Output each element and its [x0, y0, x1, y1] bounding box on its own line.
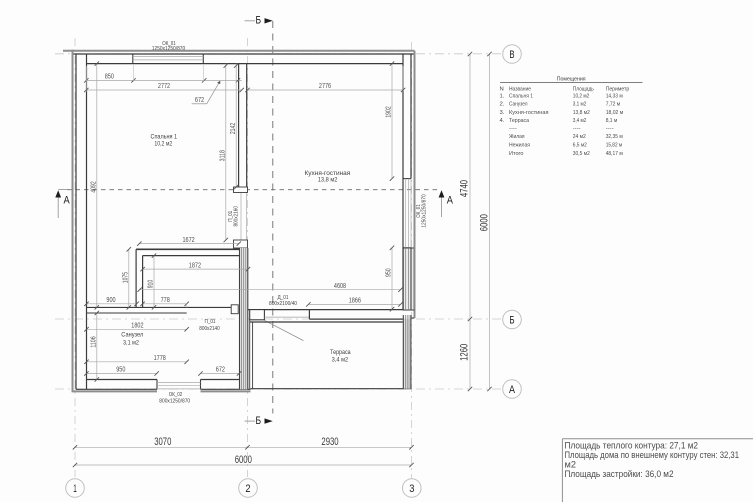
- svg-text:2.: 2.: [500, 102, 505, 108]
- svg-text:Терраса: Терраса: [330, 349, 351, 356]
- svg-text:Итого: Итого: [509, 151, 524, 157]
- svg-text:13,8 м2: 13,8 м2: [318, 176, 338, 183]
- svg-text:8,1 м: 8,1 м: [606, 118, 618, 124]
- svg-text:6000: 6000: [235, 454, 252, 466]
- svg-text:1260: 1260: [459, 344, 471, 361]
- svg-text:Санузел: Санузел: [121, 332, 143, 339]
- svg-text:А: А: [447, 195, 454, 207]
- svg-text:800х2100/40: 800х2100/40: [269, 301, 297, 307]
- svg-text:2776: 2776: [319, 83, 331, 90]
- svg-text:Д_01: Д_01: [278, 295, 289, 301]
- svg-text:Б: Б: [256, 415, 262, 427]
- svg-text:3,1 м2: 3,1 м2: [123, 340, 139, 347]
- svg-text:6,5 м2: 6,5 м2: [573, 143, 587, 149]
- svg-text:15,82 м: 15,82 м: [606, 143, 623, 149]
- svg-text:1802: 1802: [131, 323, 143, 330]
- svg-text:Б: Б: [256, 15, 262, 27]
- svg-text:2930: 2930: [321, 436, 338, 448]
- svg-text:1.: 1.: [500, 94, 505, 100]
- svg-text:3,4 м2: 3,4 м2: [573, 118, 587, 124]
- svg-text:А: А: [64, 194, 71, 206]
- svg-text:800х1250/870: 800х1250/870: [159, 399, 190, 405]
- svg-text:Б: Б: [509, 315, 514, 327]
- svg-text:1672: 1672: [183, 237, 195, 244]
- svg-text:----: ----: [509, 126, 517, 132]
- svg-text:В: В: [509, 49, 514, 61]
- svg-text:Название: Название: [509, 87, 532, 93]
- svg-text:1106: 1106: [91, 336, 98, 347]
- svg-text:24 м2: 24 м2: [573, 134, 586, 140]
- svg-text:3.: 3.: [500, 110, 505, 116]
- svg-text:10,2 м2: 10,2 м2: [573, 94, 590, 100]
- svg-text:Кухня-гостиная: Кухня-гостиная: [509, 110, 549, 116]
- svg-text:Периметр: Периметр: [606, 87, 630, 93]
- svg-text:Площадь дома по внешнему конту: Площадь дома по внешнему контуру стен: 3…: [565, 450, 740, 460]
- svg-text:4.: 4.: [500, 118, 505, 124]
- svg-text:850: 850: [105, 74, 114, 81]
- svg-text:778: 778: [161, 297, 170, 304]
- svg-text:13,8 м2: 13,8 м2: [573, 110, 590, 116]
- svg-text:14,33 м: 14,33 м: [606, 94, 623, 100]
- svg-text:1866: 1866: [349, 298, 361, 305]
- svg-text:3118: 3118: [219, 150, 226, 161]
- svg-text:2142: 2142: [230, 123, 237, 134]
- svg-text:N: N: [500, 87, 504, 93]
- svg-text:Помещения: Помещения: [557, 77, 586, 83]
- svg-text:1778: 1778: [154, 355, 166, 362]
- svg-text:48,17 м: 48,17 м: [606, 151, 623, 157]
- svg-text:1902: 1902: [386, 106, 393, 117]
- svg-text:4092: 4092: [91, 181, 98, 192]
- svg-text:4608: 4608: [334, 283, 346, 290]
- svg-text:10,2 м2: 10,2 м2: [154, 141, 172, 148]
- svg-text:1250х1250/870: 1250х1250/870: [421, 194, 427, 227]
- svg-text:----: ----: [573, 126, 581, 132]
- svg-text:ОК_02: ОК_02: [169, 392, 183, 398]
- svg-text:Спальня 1: Спальня 1: [509, 94, 533, 100]
- svg-text:32,35 м: 32,35 м: [606, 134, 623, 140]
- svg-text:3,1 м2: 3,1 м2: [573, 102, 587, 108]
- svg-text:900: 900: [106, 297, 115, 304]
- svg-text:Площадь застройки: 36,0 м2: Площадь застройки: 36,0 м2: [565, 469, 674, 479]
- svg-text:950: 950: [386, 268, 393, 277]
- svg-text:950: 950: [116, 367, 125, 374]
- svg-text:7,72 м: 7,72 м: [606, 102, 621, 108]
- svg-text:Терраса: Терраса: [509, 118, 530, 124]
- svg-text:1: 1: [73, 483, 77, 495]
- svg-text:6000: 6000: [478, 214, 490, 231]
- svg-text:4740: 4740: [459, 180, 471, 197]
- svg-text:30,5 м2: 30,5 м2: [573, 151, 590, 157]
- svg-text:2772: 2772: [158, 83, 170, 90]
- svg-text:2: 2: [245, 483, 250, 495]
- svg-text:1075: 1075: [123, 272, 130, 283]
- svg-text:3: 3: [409, 483, 414, 495]
- svg-text:3,4 м2: 3,4 м2: [332, 357, 349, 364]
- svg-text:Жилая: Жилая: [509, 134, 525, 140]
- svg-text:Нежилая: Нежилая: [509, 143, 530, 149]
- svg-text:1250х1250/870: 1250х1250/870: [152, 46, 185, 52]
- svg-text:1872: 1872: [189, 262, 201, 269]
- svg-text:А: А: [509, 384, 516, 396]
- svg-text:672: 672: [216, 367, 225, 374]
- svg-text:Санузел: Санузел: [509, 102, 528, 108]
- svg-text:П_01: П_01: [205, 319, 216, 325]
- svg-text:910: 910: [148, 280, 155, 289]
- svg-text:Площадь: Площадь: [573, 87, 594, 93]
- svg-text:3070: 3070: [154, 436, 171, 448]
- svg-text:800х2160: 800х2160: [234, 206, 240, 227]
- svg-text:672: 672: [195, 97, 204, 104]
- svg-text:18,02 м: 18,02 м: [606, 110, 624, 116]
- svg-text:800х2140: 800х2140: [199, 326, 220, 332]
- svg-text:----: ----: [606, 126, 614, 132]
- svg-text:Спальня 1: Спальня 1: [151, 133, 178, 140]
